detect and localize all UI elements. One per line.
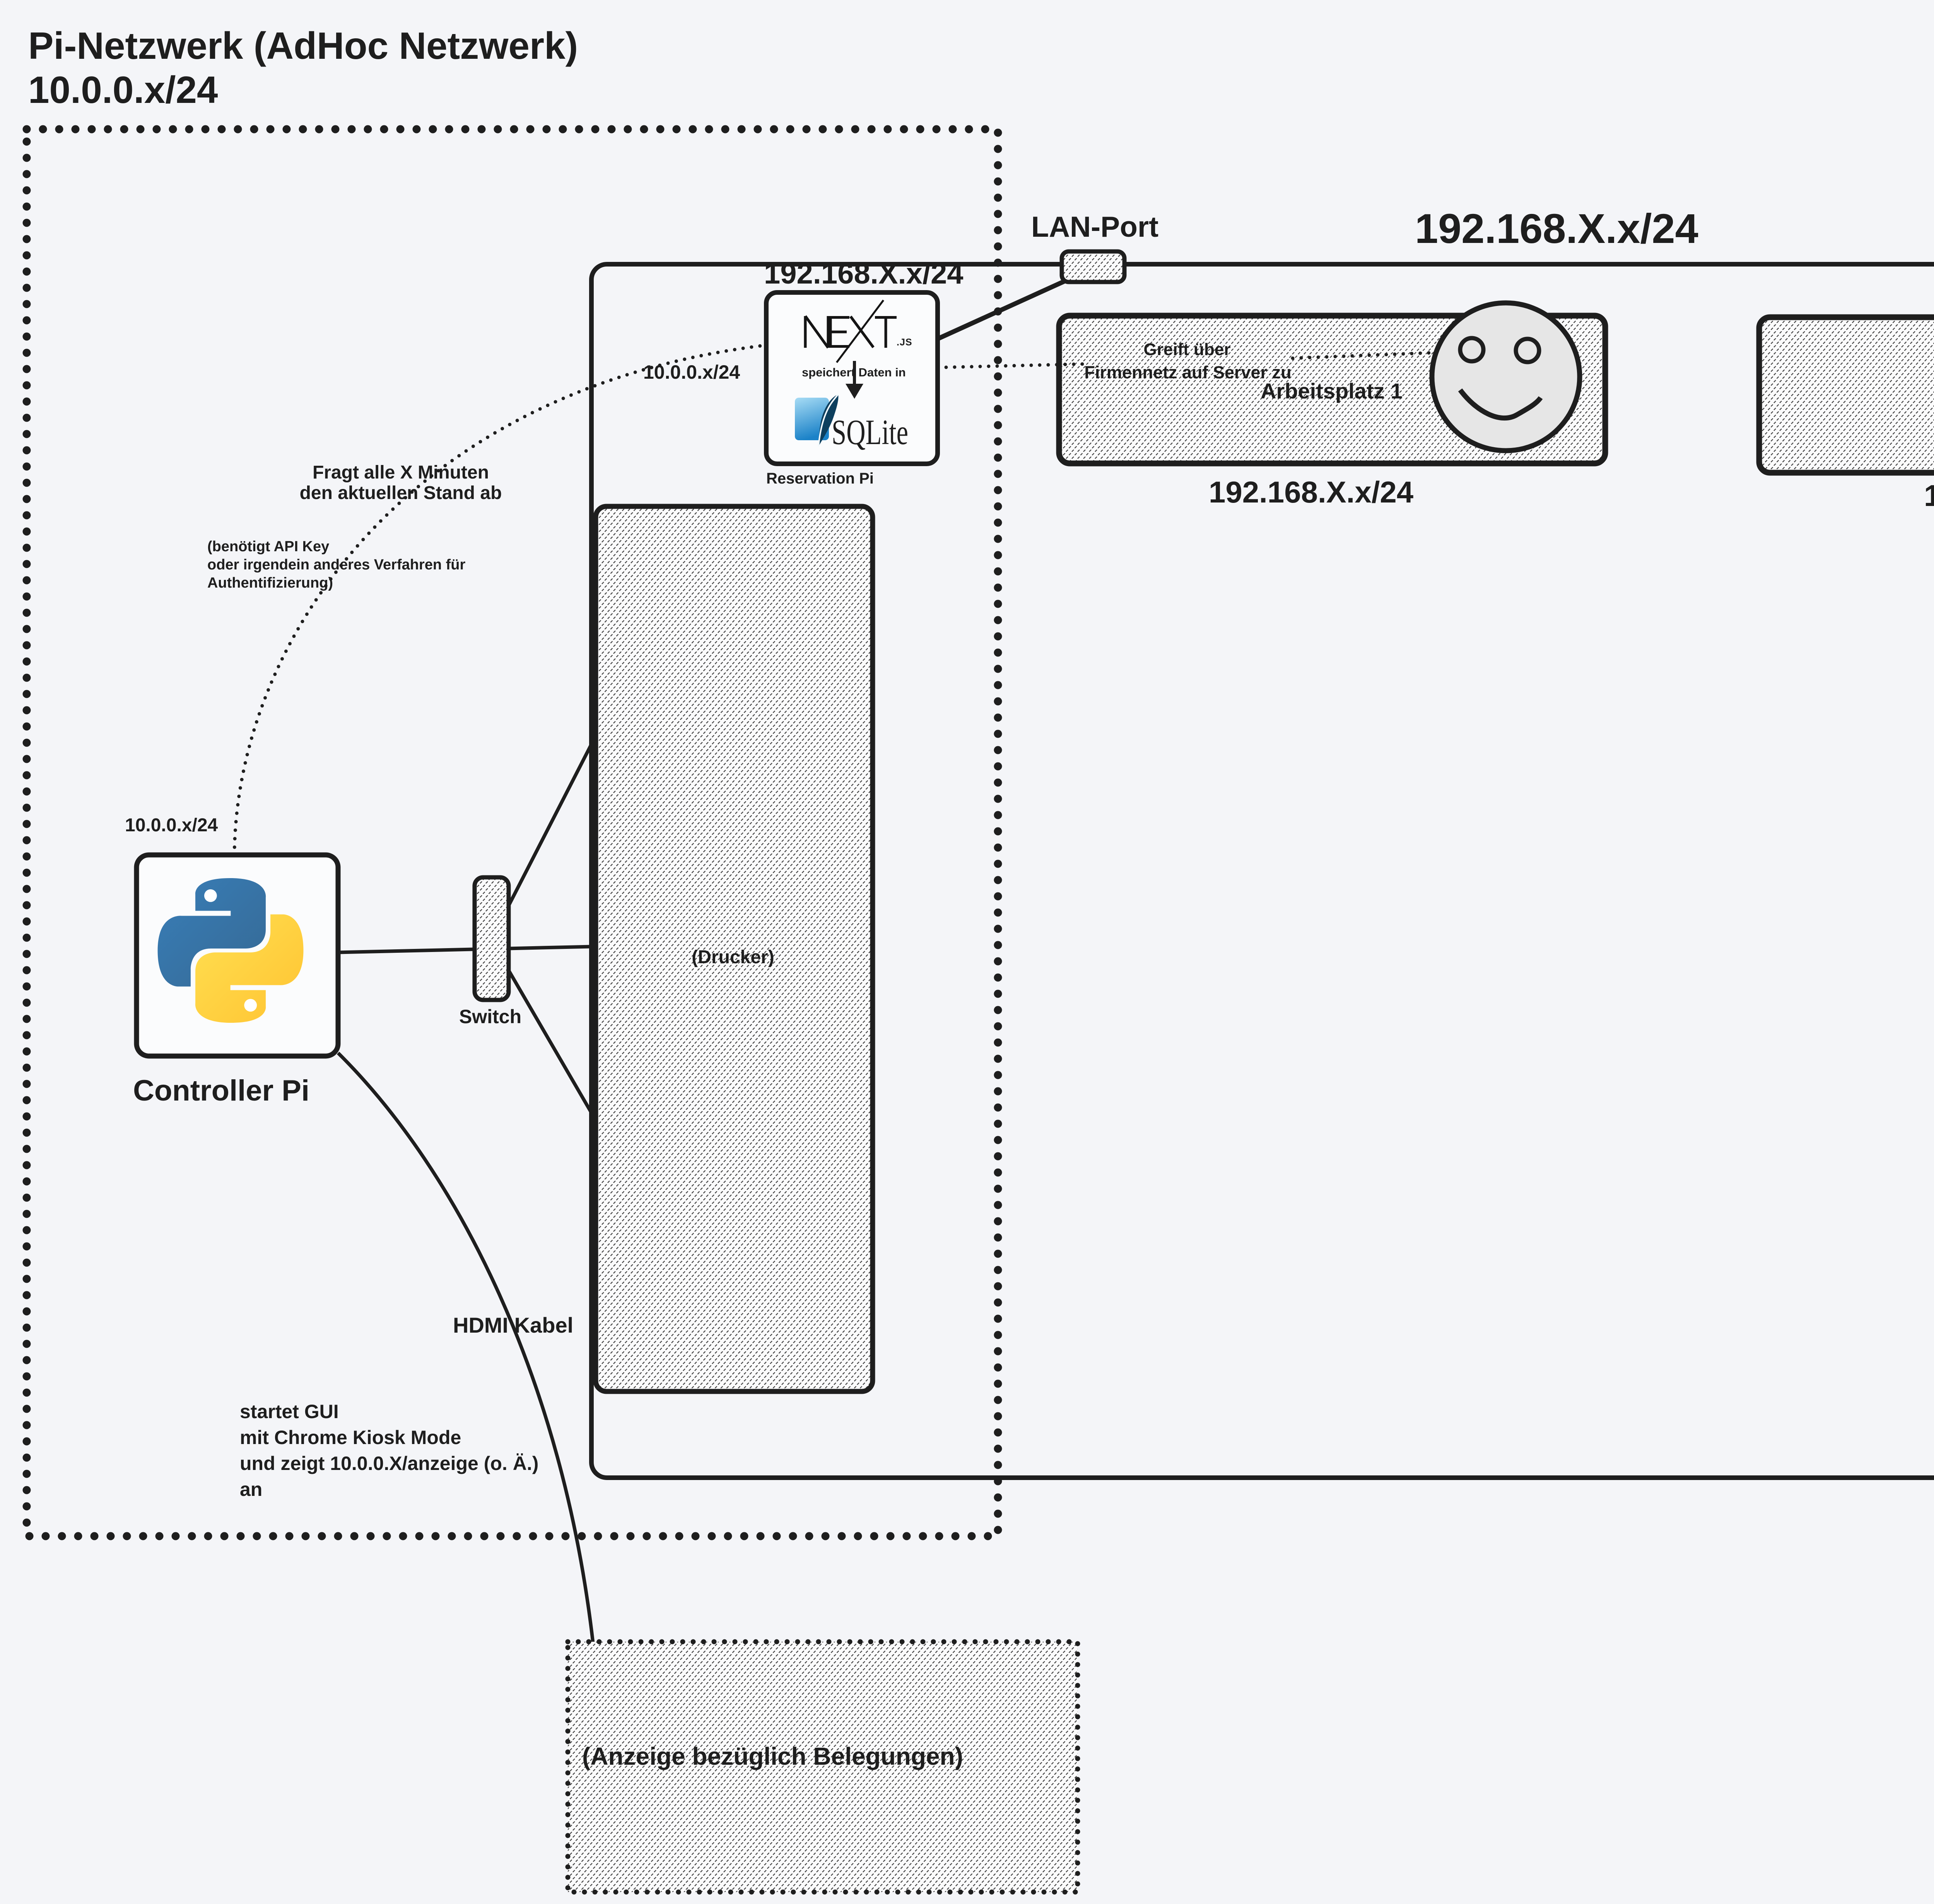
svg-text:.JS: .JS <box>897 337 912 348</box>
svg-text:Greift über: Greift über <box>1144 340 1231 359</box>
svg-text:Authentifizierung): Authentifizierung) <box>207 575 333 591</box>
svg-text:Controller Pi: Controller Pi <box>133 1074 309 1107</box>
svg-text:Arbeitsplatz 1: Arbeitsplatz 1 <box>1261 379 1403 403</box>
svg-text:mit Chrome Kiosk Mode: mit Chrome Kiosk Mode <box>240 1427 461 1448</box>
svg-text:10.0.0.x/24: 10.0.0.x/24 <box>125 815 218 836</box>
svg-text:und zeigt 10.0.0.X/anzeige (o.: und zeigt 10.0.0.X/anzeige (o. Ä.) <box>240 1453 538 1474</box>
svg-text:192.168.X.x/24: 192.168.X.x/24 <box>764 257 964 290</box>
svg-text:LAN-Port: LAN-Port <box>1031 210 1158 243</box>
svg-text:192.168.X.x/24: 192.168.X.x/24 <box>1415 205 1698 252</box>
svg-text:192.168.X.x/24: 192.168.X.x/24 <box>1209 475 1413 509</box>
svg-text:Reservation Pi: Reservation Pi <box>766 470 874 487</box>
svg-text:(Drucker): (Drucker) <box>692 947 774 967</box>
svg-text:Pi-Netzwerk (AdHoc Netzwerk): Pi-Netzwerk (AdHoc Netzwerk) <box>28 24 578 67</box>
svg-text:(Anzeige bezüglich Belegungen): (Anzeige bezüglich Belegungen) <box>582 1742 963 1770</box>
svg-text:Fragt alle X Minuten: Fragt alle X Minuten <box>313 462 489 483</box>
svg-text:den aktuellen Stand ab: den aktuellen Stand ab <box>300 483 502 503</box>
svg-text:10.0.0.x/24: 10.0.0.x/24 <box>643 361 740 383</box>
svg-text:(benötigt API Key: (benötigt API Key <box>207 538 329 555</box>
svg-text:192.168.X.x/24: 192.168.X.x/24 <box>1924 479 1934 513</box>
svg-text:oder irgendein anderes Verfahr: oder irgendein anderes Verfahren für <box>207 557 466 573</box>
svg-text:an: an <box>240 1478 262 1500</box>
svg-text:HDMI Kabel: HDMI Kabel <box>453 1313 573 1337</box>
svg-text:startet GUI: startet GUI <box>240 1401 339 1422</box>
svg-text:10.0.0.x/24: 10.0.0.x/24 <box>28 68 218 111</box>
svg-text:Switch: Switch <box>459 1006 521 1027</box>
svg-text:SQLite: SQLite <box>832 412 908 452</box>
